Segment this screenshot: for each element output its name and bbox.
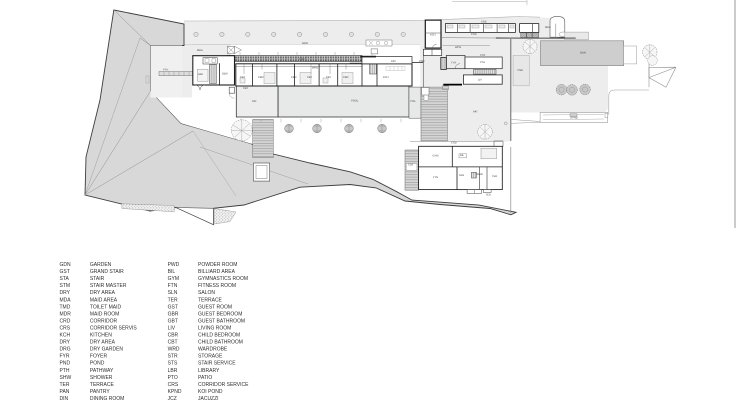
- svg-text:MDA: MDA: [197, 49, 203, 52]
- svg-text:CORRIDOR: CORRIDOR: [90, 318, 118, 324]
- svg-text:GRAND STAIR: GRAND STAIR: [90, 269, 124, 275]
- svg-text:POWDER ROOM: POWDER ROOM: [198, 262, 237, 268]
- svg-text:PND: PND: [518, 69, 524, 72]
- svg-text:DRY GARDEN: DRY GARDEN: [90, 347, 124, 353]
- svg-text:PATIO: PATIO: [198, 375, 212, 381]
- svg-text:TERRACE: TERRACE: [90, 382, 115, 388]
- svg-text:BILLIARD AREA: BILLIARD AREA: [198, 269, 236, 275]
- svg-text:CRD: CRD: [299, 58, 305, 61]
- svg-text:CBT: CBT: [168, 340, 178, 346]
- svg-text:PWD: PWD: [168, 262, 180, 268]
- svg-text:POOL: POOL: [351, 100, 359, 103]
- svg-text:PTH: PTH: [60, 368, 70, 374]
- svg-text:CRS: CRS: [471, 33, 477, 36]
- svg-text:CBR: CBR: [258, 76, 264, 79]
- svg-text:CBT: CBT: [243, 87, 249, 90]
- svg-text:CBR: CBR: [291, 76, 297, 79]
- svg-text:CHILD BATHROOM: CHILD BATHROOM: [198, 340, 243, 346]
- svg-text:PND: PND: [60, 361, 71, 367]
- svg-text:BIL: BIL: [460, 154, 464, 157]
- svg-text:LIV: LIV: [168, 325, 176, 331]
- svg-text:PATHWAY: PATHWAY: [90, 368, 114, 374]
- svg-text:TMD: TMD: [60, 304, 71, 310]
- svg-text:LIBRARY: LIBRARY: [198, 368, 220, 374]
- svg-text:SHOWER: SHOWER: [90, 375, 113, 381]
- svg-text:FOYER: FOYER: [90, 354, 108, 360]
- svg-text:TER: TER: [492, 175, 497, 178]
- svg-text:CORRIDOR SERVICE: CORRIDOR SERVICE: [198, 382, 249, 388]
- svg-text:GUEST BATHROOM: GUEST BATHROOM: [198, 318, 245, 324]
- svg-text:GYM: GYM: [168, 276, 179, 282]
- svg-text:KPND: KPND: [571, 117, 578, 120]
- svg-text:DRY: DRY: [60, 340, 71, 346]
- svg-text:MAID ROOM: MAID ROOM: [90, 311, 119, 317]
- svg-text:WRD: WRD: [477, 173, 483, 176]
- svg-text:PAT: PAT: [473, 111, 478, 114]
- svg-text:DINING ROOM: DINING ROOM: [90, 396, 124, 400]
- svg-text:MDA: MDA: [545, 26, 551, 29]
- svg-text:GST: GST: [60, 269, 70, 275]
- svg-text:SLN: SLN: [459, 174, 464, 177]
- svg-text:SLN: SLN: [168, 290, 178, 296]
- svg-text:KCH: KCH: [383, 76, 389, 79]
- svg-text:KPND: KPND: [168, 389, 182, 395]
- svg-text:GUEST ROOM: GUEST ROOM: [198, 304, 232, 310]
- svg-text:GDN: GDN: [580, 51, 586, 54]
- svg-text:GDN: GDN: [302, 42, 308, 45]
- svg-text:SALON: SALON: [198, 290, 215, 296]
- svg-text:DIN: DIN: [60, 396, 69, 400]
- svg-text:WRD: WRD: [168, 347, 180, 353]
- svg-text:FTN: FTN: [433, 176, 438, 179]
- svg-text:TER: TER: [60, 382, 70, 388]
- svg-text:STA: STA: [60, 276, 70, 282]
- svg-text:GYMNASTICS ROOM: GYMNASTICS ROOM: [198, 276, 248, 282]
- svg-text:LBR: LBR: [168, 368, 178, 374]
- svg-text:FITNESS ROOM: FITNESS ROOM: [198, 283, 236, 289]
- svg-text:CBT: CBT: [307, 76, 313, 79]
- svg-text:MAID AREA: MAID AREA: [90, 297, 118, 303]
- svg-text:CBR: CBR: [168, 333, 179, 339]
- svg-text:TER: TER: [168, 297, 178, 303]
- svg-text:GYM: GYM: [433, 155, 439, 158]
- svg-text:JCZ: JCZ: [168, 396, 177, 400]
- svg-text:CRS: CRS: [60, 325, 71, 331]
- svg-text:DRY: DRY: [60, 290, 71, 296]
- svg-text:CBR: CBR: [343, 76, 349, 79]
- svg-text:GBR: GBR: [222, 72, 228, 75]
- svg-text:DRY AREA: DRY AREA: [90, 290, 116, 296]
- svg-text:STR: STR: [168, 354, 178, 360]
- svg-text:WARDROBE: WARDROBE: [198, 347, 228, 353]
- svg-text:STAIR: STAIR: [90, 276, 105, 282]
- svg-text:DIN: DIN: [391, 60, 396, 63]
- svg-text:KCH: KCH: [60, 333, 71, 339]
- svg-text:KOI POND: KOI POND: [198, 389, 223, 395]
- svg-text:PTO: PTO: [168, 375, 178, 381]
- svg-text:TER: TER: [486, 193, 491, 196]
- svg-text:CRD: CRD: [451, 141, 457, 144]
- svg-text:PTH: PTH: [163, 69, 168, 72]
- svg-text:PTA: PTA: [480, 61, 485, 64]
- svg-text:GBR: GBR: [168, 311, 179, 317]
- svg-text:SHW: SHW: [60, 375, 72, 381]
- svg-text:CRD: CRD: [60, 318, 71, 324]
- svg-text:CRS: CRS: [481, 20, 487, 23]
- svg-text:POL: POL: [411, 100, 417, 103]
- svg-text:KCH: KCH: [430, 33, 436, 36]
- svg-text:PANTRY: PANTRY: [90, 389, 110, 395]
- svg-text:WPG: WPG: [455, 46, 461, 49]
- svg-text:CORRIDOR SERVIS: CORRIDOR SERVIS: [90, 325, 138, 331]
- svg-text:FYR: FYR: [60, 354, 70, 360]
- svg-text:MDA: MDA: [60, 297, 72, 303]
- svg-text:JACUZZI: JACUZZI: [198, 396, 219, 400]
- svg-text:GBT: GBT: [168, 318, 178, 324]
- svg-text:STS: STS: [168, 361, 178, 367]
- svg-text:CBT: CBT: [240, 76, 246, 79]
- svg-text:STM: STM: [60, 283, 71, 289]
- svg-text:BIL: BIL: [168, 269, 176, 275]
- svg-text:PTO: PTO: [480, 54, 485, 57]
- svg-text:STORAGE: STORAGE: [198, 354, 223, 360]
- svg-text:CRS: CRS: [168, 382, 179, 388]
- svg-text:STAIR SERVICE: STAIR SERVICE: [198, 361, 236, 367]
- svg-text:LIVING ROOM: LIVING ROOM: [198, 325, 231, 331]
- svg-text:FYR: FYR: [451, 62, 456, 65]
- svg-text:TOILET MAID: TOILET MAID: [90, 304, 122, 310]
- svg-text:GST: GST: [168, 304, 178, 310]
- svg-text:TER: TER: [408, 164, 413, 167]
- svg-text:DRY AREA: DRY AREA: [90, 340, 116, 346]
- svg-text:CHILD BEDROOM: CHILD BEDROOM: [198, 333, 240, 339]
- svg-text:MDR: MDR: [60, 311, 72, 317]
- svg-text:TERRACE: TERRACE: [198, 297, 223, 303]
- svg-text:WRD: WRD: [312, 67, 318, 70]
- svg-text:LIV: LIV: [478, 79, 482, 82]
- svg-text:STAIR MASTER: STAIR MASTER: [90, 283, 127, 289]
- svg-text:GARDEN: GARDEN: [90, 262, 112, 268]
- svg-text:FTN: FTN: [168, 283, 178, 289]
- svg-text:PAT: PAT: [252, 100, 257, 103]
- svg-text:LBR: LBR: [198, 73, 203, 76]
- svg-text:GUEST BEDROOM: GUEST BEDROOM: [198, 311, 242, 317]
- svg-text:KITCHEN: KITCHEN: [90, 333, 112, 339]
- svg-text:POND: POND: [90, 361, 105, 367]
- svg-text:GDN: GDN: [60, 262, 72, 268]
- svg-text:DRG: DRG: [60, 347, 71, 353]
- svg-text:PND: PND: [419, 60, 425, 63]
- svg-text:PAN: PAN: [60, 389, 70, 395]
- svg-text:CBT: CBT: [326, 76, 332, 79]
